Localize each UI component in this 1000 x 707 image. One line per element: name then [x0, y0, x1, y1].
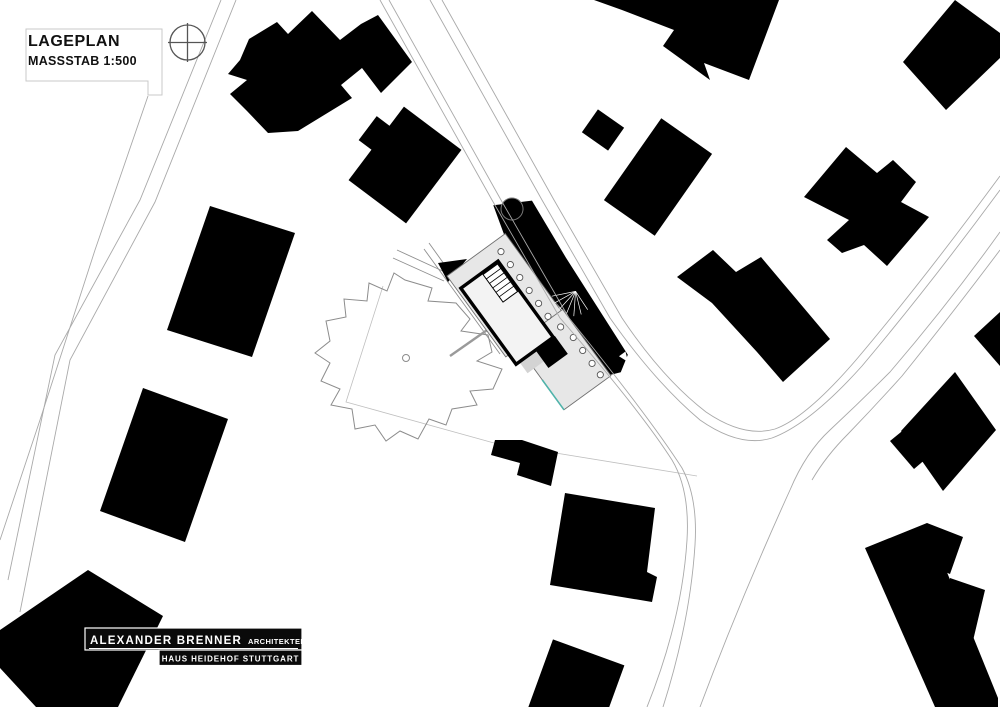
page-title: LAGEPLAN — [28, 33, 120, 50]
stamp-firm-suffix-text: ARCHITEKTEN — [248, 637, 306, 646]
building-footprint — [550, 493, 657, 602]
site-plan-canvas: LAGEPLAN MASSSTAB 1:500 ALEXANDER BRENNE… — [0, 0, 1000, 707]
scale-label: MASSSTAB 1:500 — [28, 54, 137, 68]
stamp-project-name: HAUS HEIDEHOF STUTTGART — [162, 655, 300, 664]
stamp-firm-text: ALEXANDER BRENNER — [90, 635, 242, 647]
site-plan-page: LAGEPLAN MASSSTAB 1:500 ALEXANDER BRENNE… — [0, 0, 1000, 707]
stamp-firm-name: ALEXANDER BRENNERARCHITEKTEN — [90, 635, 306, 647]
